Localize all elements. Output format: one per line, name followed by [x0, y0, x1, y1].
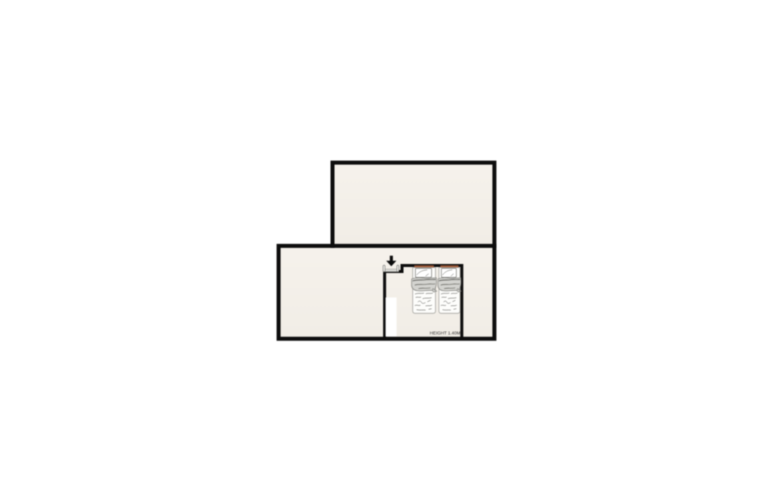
- svg-text:HEIGHT 1.40M: HEIGHT 1.40M: [430, 331, 461, 336]
